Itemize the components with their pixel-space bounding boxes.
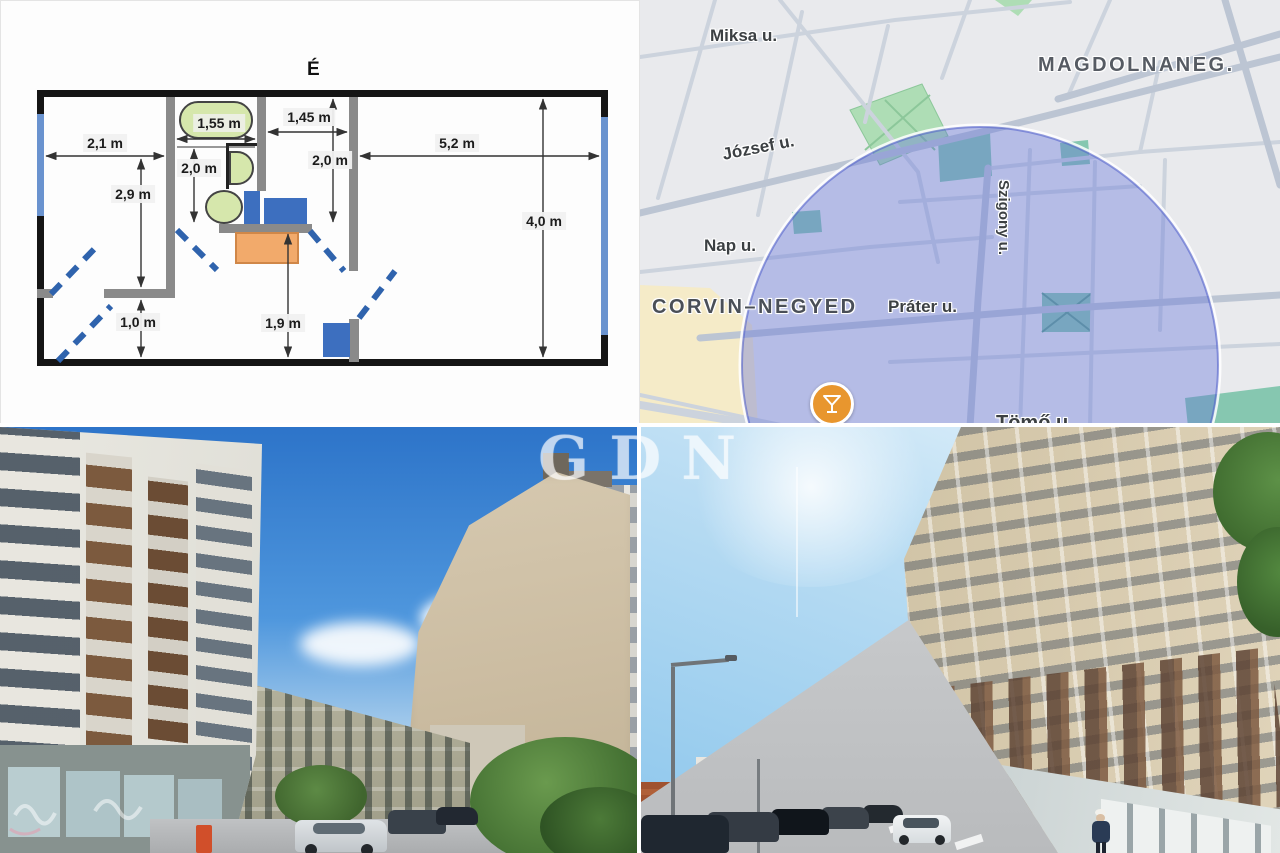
dim-label-1-45m: 1,45 m [283,108,335,126]
car-wheel [361,844,373,853]
lens-streak [796,467,798,617]
parked-car [771,809,829,835]
street-label-prater: Práter u. [888,297,957,317]
district-label-magdolna: MAGDOLNANEG. [1038,54,1235,77]
pedestrian [1089,809,1113,853]
street-lamp-head [725,655,737,661]
dim-label-1-55m: 1,55 m [193,114,245,132]
window-column [0,427,80,800]
door-swing-lines [51,230,395,361]
dim-label-1-0m: 1,0 m [116,313,160,331]
cocktail-icon [819,391,845,417]
dim-label-2-0m-bath: 2,0 m [177,159,221,177]
jacket [1092,821,1110,843]
trash-bin [196,825,212,853]
window-column [196,463,252,771]
dim-label-1-9m: 1,9 m [261,314,305,332]
tree [275,765,367,827]
map-panel: Miksa u. MAGDOLNANEG. József u. Nap u. C… [640,0,1280,427]
dim-label-4-0m: 4,0 m [522,212,566,230]
dim-label-2-9m: 2,9 m [111,185,155,203]
district-label-corvin: CORVIN–NEGYED [652,296,858,319]
car-wheel [899,835,909,845]
leg [1096,842,1100,853]
north-indicator: É [307,59,320,81]
poi-marker [810,382,854,426]
parked-car [436,807,478,825]
cloud [300,622,420,666]
dim-label-2-1m: 2,1 m [83,134,127,152]
dim-label-5-2m: 5,2 m [435,134,479,152]
white-storefront [1101,799,1271,853]
floor-plan-panel: É [0,0,640,426]
real-estate-photo-collage: É [0,0,1280,853]
dim-label-2-0m-hall: 2,0 m [308,151,352,169]
leg [1102,842,1106,853]
car-wheel [935,835,945,845]
car-windows [313,823,365,834]
car-windows [903,818,939,828]
silver-car [295,820,387,852]
car-wheel [305,844,317,853]
white-car [893,815,951,843]
balcony-column [86,453,132,758]
agency-watermark: GDN [538,424,756,494]
parked-car [641,815,729,853]
street-label-nap: Nap u. [704,236,756,256]
balcony-column [148,477,188,744]
street-label-szigony: Szigony u. [995,180,1012,255]
street-label-miksa: Miksa u. [710,26,777,46]
